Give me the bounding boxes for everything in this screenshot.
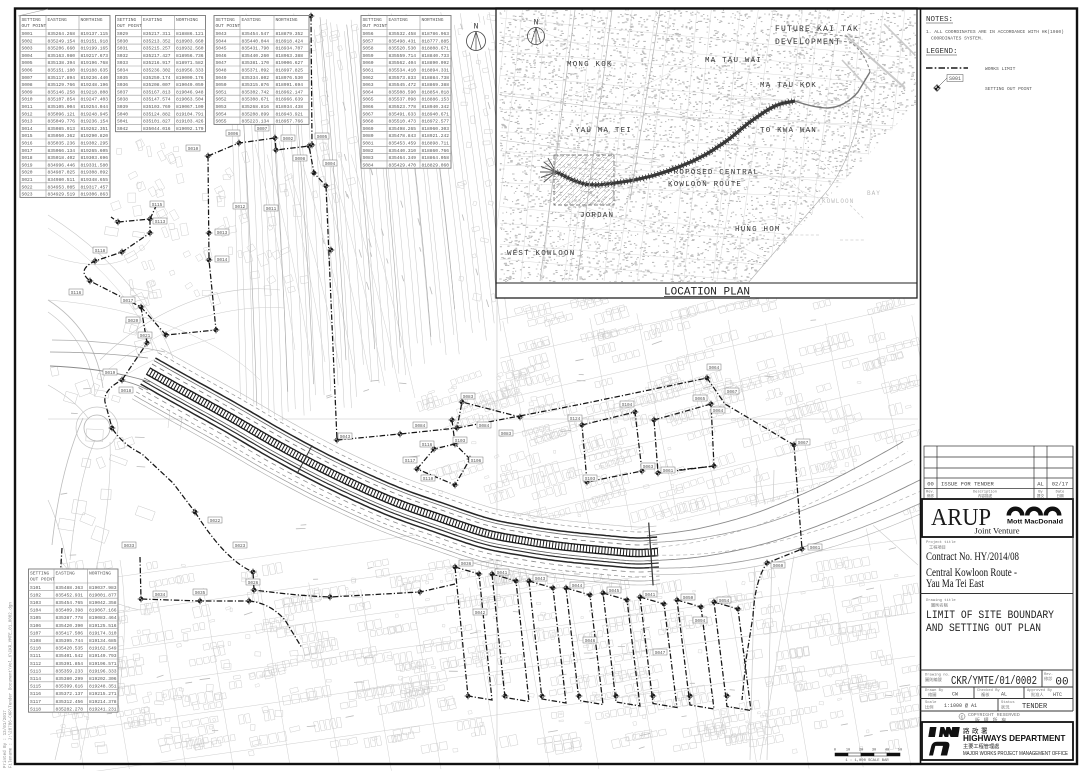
svg-text:835359.233: 835359.233 (56, 668, 84, 674)
svg-text:OUT POINT: OUT POINT (30, 577, 55, 583)
svg-text:818886.121: 818886.121 (176, 31, 204, 37)
svg-text:SETTING OUT POINT: SETTING OUT POINT (985, 86, 1032, 92)
svg-text:1 : 1,000 SCALE BAR: 1 : 1,000 SCALE BAR (845, 759, 889, 763)
svg-text:835431.790: 835431.790 (242, 46, 270, 52)
svg-text:818840.733: 818840.733 (422, 53, 450, 59)
svg-text:S058: S058 (363, 46, 374, 52)
svg-text:S048: S048 (216, 68, 227, 74)
svg-text:SETTING: SETTING (22, 17, 42, 23)
svg-text:S080: S080 (363, 133, 374, 139)
svg-text:835401.542: 835401.542 (56, 653, 84, 659)
svg-text:819331.580: 819331.580 (81, 162, 109, 168)
svg-text:Rev.: Rev. (1044, 673, 1053, 677)
svg-text:S067: S067 (363, 111, 374, 117)
svg-text:ISSUE FOR TENDER: ISSUE FOR TENDER (941, 481, 995, 488)
svg-text:835302.742: 835302.742 (242, 89, 270, 95)
svg-text:00: 00 (927, 481, 934, 488)
svg-text:818962.147: 818962.147 (276, 89, 304, 95)
svg-text:OUT POINT: OUT POINT (363, 23, 388, 29)
svg-text:835372.137: 835372.137 (56, 691, 84, 697)
svg-text:N: N (474, 23, 479, 32)
svg-text:835417.506: 835417.506 (56, 630, 84, 636)
svg-text:S102: S102 (30, 592, 41, 598)
svg-text:835282.278: 835282.278 (56, 706, 84, 712)
svg-text:S032: S032 (117, 53, 128, 59)
svg-text:S043: S043 (535, 577, 546, 582)
svg-text:SETTING: SETTING (30, 571, 50, 577)
svg-text:EASTING: EASTING (242, 17, 262, 23)
svg-text:S031: S031 (117, 46, 128, 52)
svg-text:819151.918: 819151.918 (81, 38, 109, 44)
svg-text:835151.180: 835151.180 (48, 68, 76, 74)
svg-text:30: 30 (872, 749, 876, 753)
svg-text:MONG KOK: MONG KOK (567, 61, 613, 69)
svg-text:S041: S041 (117, 119, 128, 125)
svg-text:EASTING: EASTING (143, 17, 163, 23)
svg-text:Printed By : 13/01/2017: Printed By : 13/01/2017 (3, 710, 8, 768)
svg-text:S117: S117 (405, 459, 416, 464)
svg-text:S103: S103 (30, 600, 41, 606)
svg-text:819196.768: 819196.768 (81, 60, 109, 66)
svg-text:S063: S063 (363, 82, 374, 88)
svg-text:S083: S083 (463, 395, 474, 400)
svg-text:835103.769: 835103.769 (143, 104, 171, 110)
svg-text:S082: S082 (363, 148, 374, 154)
svg-text:AND SETTING OUT PLAN: AND SETTING OUT PLAN (926, 623, 1041, 635)
svg-text:835208.899: 835208.899 (242, 111, 270, 117)
svg-text:S112: S112 (30, 661, 41, 667)
svg-text:S062: S062 (363, 75, 374, 81)
svg-text:S104: S104 (622, 403, 633, 408)
svg-text:819092.179: 819092.179 (176, 126, 204, 132)
svg-text:Yau Ma Tei East: Yau Ma Tei East (926, 578, 985, 590)
svg-text:835440.044: 835440.044 (242, 38, 270, 44)
svg-text:S036: S036 (461, 562, 472, 567)
svg-text:818918.424: 818918.424 (276, 38, 304, 44)
svg-text:835452.931: 835452.931 (56, 592, 84, 598)
svg-text:835107.854: 835107.854 (48, 97, 76, 103)
svg-text:S116: S116 (422, 443, 433, 448)
svg-text:S042: S042 (117, 126, 128, 132)
svg-text:S046: S046 (585, 639, 596, 644)
svg-text:818960.303: 818960.303 (422, 126, 450, 132)
svg-text:819067.166: 819067.166 (89, 608, 117, 614)
svg-text:10: 10 (846, 749, 850, 753)
svg-text:S050: S050 (216, 82, 227, 88)
svg-text:835206.660: 835206.660 (48, 46, 76, 52)
svg-text:S057: S057 (363, 38, 374, 44)
svg-text:MA TAU WAI: MA TAU WAI (705, 57, 762, 65)
svg-text:S104: S104 (30, 608, 41, 614)
svg-text:Scale: Scale (925, 700, 937, 705)
svg-text:S116: S116 (71, 291, 82, 296)
svg-text:S005: S005 (22, 60, 33, 66)
svg-text:834953.085: 834953.085 (48, 184, 76, 190)
svg-text:818894.331: 818894.331 (422, 68, 450, 74)
svg-text:00: 00 (1055, 677, 1068, 689)
svg-text:835464.349: 835464.349 (389, 155, 417, 161)
svg-text:TENDER: TENDER (1022, 703, 1048, 711)
svg-text:S034: S034 (117, 68, 128, 74)
svg-text:COORDINATES SYSTEM.: COORDINATES SYSTEM. (931, 36, 983, 42)
svg-text:S064: S064 (713, 409, 724, 414)
svg-text:818991.694: 818991.694 (276, 82, 304, 88)
svg-text:835138.394: 835138.394 (48, 60, 76, 66)
svg-text:S003: S003 (22, 46, 33, 52)
svg-text:MAJOR WORKS PROJECT MANAGEMENT: MAJOR WORKS PROJECT MANAGEMENT OFFICE (963, 751, 1069, 757)
svg-text:S013: S013 (22, 119, 33, 125)
svg-text:HUNG HOM: HUNG HOM (735, 226, 781, 234)
svg-text:835440.310: 835440.310 (389, 148, 417, 154)
svg-text:S113: S113 (30, 668, 41, 674)
svg-text:S035: S035 (195, 591, 206, 596)
svg-text:835223.134: 835223.134 (242, 119, 270, 125)
svg-text:S030: S030 (117, 38, 128, 44)
svg-text:819247.403: 819247.403 (81, 97, 109, 103)
svg-text:NORTHING: NORTHING (422, 17, 444, 23)
svg-text:Project title: Project title (926, 540, 956, 545)
svg-text:S001: S001 (949, 76, 961, 82)
svg-text:HTC: HTC (1053, 692, 1062, 698)
svg-text:DEVELOPMENT: DEVELOPMENT (775, 38, 841, 47)
svg-text:S033: S033 (124, 544, 135, 549)
svg-text:819214.378: 819214.378 (89, 699, 117, 705)
svg-text:Drawing title: Drawing title (926, 598, 956, 603)
svg-text:S039: S039 (117, 104, 128, 110)
svg-text:818972.577: 818972.577 (422, 119, 450, 125)
svg-text:819196.333: 819196.333 (89, 668, 117, 674)
svg-text:819236.154: 819236.154 (81, 119, 109, 125)
svg-text:835044.016: 835044.016 (143, 126, 171, 132)
svg-text:818940.671: 818940.671 (422, 111, 450, 117)
svg-text:818903.660: 818903.660 (176, 38, 204, 44)
svg-text:S010: S010 (22, 97, 33, 103)
svg-text:818963.388: 818963.388 (276, 53, 304, 59)
svg-text:835124.882: 835124.882 (143, 111, 171, 117)
svg-text:S022: S022 (22, 184, 33, 190)
svg-text:1. ALL COORDINATES ARE IN ACCO: 1. ALL COORDINATES ARE IN ACCORDANCE WIT… (926, 29, 1064, 35)
svg-text:S004: S004 (325, 162, 336, 167)
svg-text:S110: S110 (423, 477, 434, 482)
svg-text:818864.058: 818864.058 (422, 155, 450, 161)
svg-text:835096.121: 835096.121 (48, 111, 76, 117)
svg-text:819000.176: 819000.176 (176, 75, 204, 81)
svg-text:S043: S043 (340, 435, 351, 440)
svg-text:819103.426: 819103.426 (176, 119, 204, 125)
svg-text:835454.765: 835454.765 (56, 600, 84, 606)
svg-text:818976.530: 818976.530 (276, 75, 304, 81)
svg-text:S002: S002 (22, 38, 33, 44)
svg-text:818956.736: 818956.736 (176, 53, 204, 59)
svg-text:819290.820: 819290.820 (81, 133, 109, 139)
svg-text:S113: S113 (155, 220, 166, 225)
svg-text:S016: S016 (22, 141, 33, 147)
svg-text:EASTING: EASTING (389, 17, 409, 23)
svg-text:S020: S020 (22, 170, 33, 176)
svg-text:S051: S051 (216, 89, 227, 95)
svg-text:835101.827: 835101.827 (143, 119, 171, 125)
svg-text:819046.948: 819046.948 (176, 89, 204, 95)
svg-text:819037.983: 819037.983 (89, 585, 117, 591)
svg-text:835488.363: 835488.363 (56, 585, 84, 591)
svg-text:818934.438: 818934.438 (276, 104, 304, 110)
svg-text:S044: S044 (216, 38, 227, 44)
svg-text:S006: S006 (22, 68, 33, 74)
svg-text:S010: S010 (188, 147, 199, 152)
svg-text:835215.257: 835215.257 (143, 46, 171, 52)
svg-text:N: N (534, 19, 539, 28)
svg-text:S018: S018 (22, 155, 33, 161)
svg-text:S020: S020 (128, 319, 139, 324)
svg-text:S044: S044 (572, 584, 583, 589)
svg-text:818940.342: 818940.342 (422, 104, 450, 110)
svg-text:S065: S065 (363, 97, 374, 103)
svg-text:S050: S050 (683, 596, 694, 601)
svg-text:835268.816: 835268.816 (242, 104, 270, 110)
svg-text:819248.351: 819248.351 (89, 684, 117, 690)
svg-text:OUT POINT: OUT POINT (117, 23, 142, 29)
svg-text:819202.306: 819202.306 (89, 676, 117, 682)
svg-text:S054: S054 (216, 111, 227, 117)
svg-text:20: 20 (859, 749, 863, 753)
svg-text:835545.472: 835545.472 (389, 82, 417, 88)
svg-text:818860.766: 818860.766 (422, 148, 450, 154)
svg-text:S049: S049 (216, 75, 227, 81)
svg-text:S069: S069 (363, 126, 374, 132)
svg-text:818890.092: 818890.092 (422, 60, 450, 66)
svg-text:S116: S116 (30, 691, 41, 697)
svg-text:S006: S006 (228, 132, 239, 137)
svg-text:S115: S115 (30, 684, 41, 690)
svg-text:HIGHWAYS DEPARTMENT: HIGHWAYS DEPARTMENT (963, 734, 1065, 743)
svg-text:S055: S055 (216, 119, 227, 125)
svg-text:818884.738: 818884.738 (422, 75, 450, 81)
svg-text:818956.333: 818956.333 (176, 68, 204, 74)
svg-text:S094: S094 (695, 619, 706, 624)
svg-text:S064: S064 (363, 89, 374, 95)
svg-text:835491.633: 835491.633 (389, 111, 417, 117)
svg-text:835264.268: 835264.268 (48, 31, 76, 37)
svg-text:Drawing no.: Drawing no. (925, 673, 950, 678)
svg-text:S061: S061 (810, 546, 821, 551)
svg-text:819302.295: 819302.295 (81, 141, 109, 147)
svg-text:835573.833: 835573.833 (389, 75, 417, 81)
svg-text:819303.696: 819303.696 (81, 155, 109, 161)
svg-text:S011: S011 (266, 207, 277, 212)
svg-text:819199.165: 819199.165 (81, 46, 109, 52)
svg-text:主要工程管理處: 主要工程管理處 (963, 742, 999, 750)
svg-text:819049.059: 819049.059 (176, 82, 204, 88)
svg-text:S012: S012 (22, 111, 33, 117)
svg-text:835249.154: 835249.154 (48, 38, 76, 44)
svg-text:S018: S018 (121, 389, 132, 394)
svg-text:S107: S107 (30, 630, 41, 636)
svg-text:LIMIT OF SITE BOUNDARY: LIMIT OF SITE BOUNDARY (926, 610, 1054, 622)
svg-text:819265.605: 819265.605 (81, 148, 109, 154)
svg-text:BAY: BAY (867, 190, 881, 197)
svg-text:MA TAU KOK: MA TAU KOK (760, 82, 817, 90)
svg-text:S084: S084 (363, 162, 374, 168)
svg-text:S035: S035 (117, 75, 128, 81)
svg-text:S021: S021 (140, 334, 151, 339)
svg-text:818971.582: 818971.582 (176, 60, 204, 66)
svg-text:SETTING: SETTING (216, 17, 236, 23)
svg-text:S047: S047 (216, 60, 227, 66)
svg-text:S111: S111 (30, 653, 41, 659)
svg-text:818854.018: 818854.018 (422, 89, 450, 95)
svg-text:S068: S068 (363, 119, 374, 125)
svg-text:835066.134: 835066.134 (48, 148, 76, 154)
svg-text:819134.685: 819134.685 (89, 638, 117, 644)
svg-text:WEST KOWLOON: WEST KOWLOON (507, 250, 575, 258)
svg-text:AL: AL (1001, 692, 1007, 698)
svg-text:AL: AL (1037, 481, 1044, 488)
svg-text:SETTING: SETTING (117, 17, 137, 23)
svg-text:S103: S103 (455, 439, 466, 444)
svg-text:834929.519: 834929.519 (48, 192, 76, 198)
svg-text:835371.092: 835371.092 (242, 68, 270, 74)
svg-text:S084: S084 (415, 424, 426, 429)
svg-text:S041: S041 (645, 593, 656, 598)
svg-text:S033: S033 (117, 60, 128, 66)
svg-text:Contract No. HY/2014/08: Contract No. HY/2014/08 (926, 551, 1019, 563)
svg-text:Status: Status (1001, 701, 1015, 705)
svg-text:S056: S056 (363, 31, 374, 37)
svg-text:818957.766: 818957.766 (276, 119, 304, 125)
svg-text:40: 40 (885, 749, 889, 753)
svg-text:835380.299: 835380.299 (56, 676, 84, 682)
svg-text:S046: S046 (216, 53, 227, 59)
svg-text:Checked By: Checked By (977, 688, 1001, 693)
svg-text:EASTING: EASTING (56, 571, 76, 577)
svg-text:S083: S083 (501, 432, 512, 437)
svg-text:834980.511: 834980.511 (48, 177, 76, 183)
svg-text:818808.671: 818808.671 (422, 46, 450, 52)
svg-text:S064: S064 (709, 366, 720, 371)
svg-text:S029: S029 (117, 31, 128, 37)
svg-text:Filename : J:\28786-CKR\Tend: Filename : J:\28786-CKR\Tender Document\… (9, 602, 14, 768)
svg-text:S019: S019 (105, 371, 116, 376)
svg-text:S047: S047 (655, 651, 666, 656)
svg-text:818997.825: 818997.825 (276, 68, 304, 74)
svg-text:835387.778: 835387.778 (56, 615, 84, 621)
svg-text:S045: S045 (216, 46, 227, 52)
svg-text:835050.362: 835050.362 (48, 133, 76, 139)
svg-text:819067.100: 819067.100 (176, 104, 204, 110)
svg-text:S084: S084 (479, 424, 490, 429)
svg-text:S012: S012 (235, 205, 246, 210)
svg-text:Drawn By: Drawn By (925, 688, 944, 693)
svg-text:S022: S022 (210, 519, 221, 524)
svg-text:835085.913: 835085.913 (48, 126, 76, 132)
svg-text:835308.671: 835308.671 (242, 97, 270, 103)
svg-text:S038: S038 (117, 97, 128, 103)
svg-text:Approved By: Approved By (1027, 688, 1053, 693)
svg-text:KOWLOON: KOWLOON (822, 198, 854, 205)
svg-text:819042.358: 819042.358 (89, 600, 117, 606)
svg-text:S060: S060 (363, 60, 374, 66)
svg-text:819217.673: 819217.673 (81, 53, 109, 59)
svg-text:S061: S061 (663, 469, 674, 474)
svg-text:S067: S067 (727, 390, 738, 395)
svg-text:S065: S065 (695, 397, 706, 402)
svg-text:S008: S008 (22, 82, 33, 88)
svg-text:835146.258: 835146.258 (48, 89, 76, 95)
svg-text:OUT POINT: OUT POINT (216, 23, 241, 29)
svg-text:EASTING: EASTING (48, 17, 68, 23)
svg-text:Joint Venture: Joint Venture (975, 526, 1020, 536)
svg-text:819248.945: 819248.945 (81, 111, 109, 117)
svg-text:835429.470: 835429.470 (389, 162, 417, 168)
svg-text:PROPOSED CENTRAL: PROPOSED CENTRAL (668, 169, 759, 177)
svg-text:S083: S083 (363, 155, 374, 161)
svg-text:819188.635: 819188.635 (81, 68, 109, 74)
svg-text:819218.808: 819218.808 (81, 89, 109, 95)
svg-text:02/17: 02/17 (1052, 481, 1069, 488)
svg-text:OUT POINT: OUT POINT (22, 23, 47, 29)
svg-text:S036: S036 (117, 82, 128, 88)
svg-text:SETTING: SETTING (363, 17, 383, 23)
svg-text:835167.813: 835167.813 (143, 89, 171, 95)
svg-text:S067: S067 (798, 441, 809, 446)
svg-text:S114: S114 (30, 676, 41, 682)
svg-text:S053: S053 (216, 104, 227, 110)
svg-text:819001.877: 819001.877 (89, 592, 117, 598)
svg-text:S042: S042 (475, 611, 486, 616)
svg-text:S106: S106 (30, 623, 41, 629)
svg-text:S009: S009 (22, 89, 33, 95)
svg-text:S103: S103 (585, 477, 596, 482)
svg-text:S011: S011 (22, 104, 33, 110)
svg-text:S101: S101 (30, 585, 41, 591)
svg-text:835523.778: 835523.778 (389, 104, 417, 110)
svg-text:NORTHING: NORTHING (176, 17, 198, 23)
svg-text:819137.115: 819137.115 (81, 31, 109, 37)
svg-text:Date: Date (1056, 491, 1065, 495)
svg-text:819254.044: 819254.044 (81, 104, 109, 110)
svg-text:835147.574: 835147.574 (143, 97, 171, 103)
svg-text:S017: S017 (22, 148, 33, 154)
svg-text:S040: S040 (117, 111, 128, 117)
svg-text:834987.025: 834987.025 (48, 170, 76, 176)
svg-text:S019: S019 (22, 162, 33, 168)
svg-text:818886.153: 818886.153 (422, 97, 450, 103)
svg-text:S007: S007 (257, 127, 268, 132)
svg-text:835213.352: 835213.352 (143, 38, 171, 44)
svg-text:835537.098: 835537.098 (389, 97, 417, 103)
svg-text:818921.242: 818921.242 (422, 133, 450, 139)
svg-text:KOWLOON ROUTE: KOWLOON ROUTE (668, 181, 742, 189)
svg-text:835315.876: 835315.876 (242, 82, 270, 88)
svg-text:835498.431: 835498.431 (389, 38, 417, 44)
svg-text:835453.459: 835453.459 (389, 141, 417, 147)
svg-text:S008: S008 (295, 157, 306, 162)
svg-text:S054: S054 (719, 599, 730, 604)
svg-text:S060: S060 (773, 564, 784, 569)
svg-text:818932.560: 818932.560 (176, 46, 204, 52)
svg-text:835018.402: 835018.402 (48, 155, 76, 161)
svg-text:COPYRIGHT RESERVED: COPYRIGHT RESERVED (968, 712, 1020, 718)
svg-text:S124: S124 (570, 417, 581, 422)
svg-text:835117.894: 835117.894 (48, 75, 76, 81)
svg-text:S115: S115 (152, 203, 163, 208)
svg-text:S014: S014 (22, 126, 33, 132)
svg-text:CW: CW (952, 692, 958, 698)
svg-text:S105: S105 (30, 615, 41, 621)
svg-text:835163.980: 835163.980 (48, 53, 76, 59)
svg-text:819215.271: 819215.271 (89, 691, 117, 697)
svg-text:NORTHING: NORTHING (89, 571, 111, 577)
